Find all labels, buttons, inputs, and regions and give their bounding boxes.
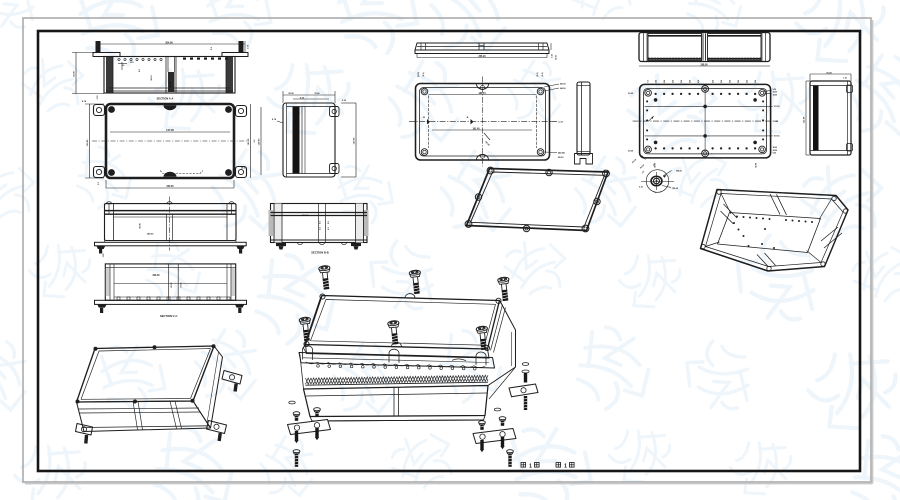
svg-text:2.0: 2.0 [642, 171, 645, 174]
svg-text:25.4: 25.4 [754, 80, 757, 83]
svg-text:9.5: 9.5 [648, 80, 650, 82]
svg-text:(9.5): (9.5) [537, 72, 539, 76]
svg-text:76.20: 76.20 [826, 72, 832, 74]
svg-text:26.50: 26.50 [773, 150, 778, 152]
svg-text:R6.00: R6.00 [558, 157, 564, 159]
svg-text:SECTION C-C: SECTION C-C [160, 314, 178, 318]
svg-text:25.4: 25.4 [728, 80, 731, 83]
svg-text:25.4: 25.4 [680, 80, 683, 83]
svg-text:25.4: 25.4 [671, 80, 674, 83]
svg-text:- 13.5: - 13.5 [128, 62, 134, 64]
svg-text:M4.00: M4.00 [676, 170, 683, 173]
svg-text:28.50: 28.50 [241, 168, 246, 170]
svg-text:R4.50: R4.50 [631, 158, 637, 164]
svg-text:SECTION A-A: SECTION A-A [157, 97, 174, 101]
svg-text:148.30: 148.30 [147, 233, 154, 236]
svg-text:1.50: 1.50 [97, 95, 99, 100]
svg-text:B: B [423, 117, 425, 119]
svg-text:8.5: 8.5 [139, 68, 141, 72]
svg-text:-C.00: -C.00 [558, 122, 564, 124]
svg-text:8.74: 8.74 [272, 118, 277, 121]
svg-text:36.10: 36.10 [151, 75, 153, 81]
svg-text:85.00: 85.00 [171, 282, 173, 288]
svg-text:25.4: 25.4 [688, 80, 691, 83]
svg-text:95.00: 95.00 [140, 223, 142, 229]
svg-text:1.50: 1.50 [103, 254, 105, 258]
svg-text:25.4: 25.4 [737, 80, 740, 83]
svg-text:206.30: 206.30 [152, 275, 160, 277]
svg-text:69.30: 69.30 [628, 93, 634, 95]
svg-text:1.30: 1.30 [843, 78, 847, 80]
svg-text:25.00: 25.00 [288, 93, 294, 95]
svg-text:6.35: 6.35 [342, 100, 347, 102]
svg-text:Ø6.00: Ø6.00 [560, 84, 566, 86]
svg-text:6.30: 6.30 [639, 187, 643, 189]
svg-text:25.4: 25.4 [745, 80, 748, 83]
svg-text:107.30: 107.30 [774, 106, 780, 108]
svg-text:38.00: 38.00 [773, 147, 778, 149]
svg-text:8.74: 8.74 [82, 100, 87, 103]
svg-text:38.00: 38.00 [773, 95, 778, 97]
svg-text:4.5: 4.5 [327, 227, 330, 230]
svg-text:R5.00: R5.00 [673, 188, 679, 190]
svg-text:3.5: 3.5 [654, 164, 656, 167]
svg-text:208.00: 208.00 [700, 64, 708, 66]
svg-text:1.50: 1.50 [552, 54, 554, 58]
svg-text:191.40: 191.40 [472, 127, 480, 130]
svg-text:0.4: 0.4 [253, 139, 256, 143]
svg-text:(6.0): (6.0) [542, 72, 544, 76]
svg-text:(6.0): (6.0) [423, 72, 425, 76]
svg-text:B: B [467, 117, 469, 119]
svg-text:14.00: 14.00 [555, 55, 558, 60]
svg-text:160.00: 160.00 [248, 138, 250, 145]
svg-text:205.20: 205.20 [478, 56, 486, 58]
svg-text:-0.00: -0.00 [774, 121, 778, 123]
svg-text:(9.50): (9.50) [418, 72, 420, 77]
svg-text:R4.20: R4.20 [484, 141, 491, 148]
svg-text:204.00: 204.00 [165, 41, 173, 44]
svg-text:42.60: 42.60 [169, 81, 172, 87]
svg-text:183.54: 183.54 [478, 92, 486, 95]
svg-text:26.00: 26.00 [773, 92, 778, 94]
svg-text:152.40: 152.40 [86, 139, 89, 146]
svg-text:3.5: 3.5 [320, 227, 322, 230]
svg-text:75.40: 75.40 [314, 92, 320, 95]
svg-text:200.00: 200.00 [166, 186, 174, 188]
svg-text:7°: 7° [654, 193, 656, 195]
svg-text:3.5: 3.5 [211, 46, 213, 50]
svg-text:Ø4.00: Ø4.00 [560, 87, 566, 90]
svg-text:152.00: 152.00 [804, 116, 806, 123]
svg-text:55.00: 55.00 [74, 70, 76, 76]
svg-text:158.00: 158.00 [259, 138, 261, 145]
svg-text:8.5: 8.5 [320, 221, 322, 224]
svg-text:25.4: 25.4 [720, 80, 723, 83]
svg-text:9.5: 9.5 [328, 221, 330, 224]
svg-text:(Ø4.00): (Ø4.00) [558, 152, 565, 155]
svg-text:185.00: 185.00 [302, 215, 309, 217]
svg-text:SECTION B-B: SECTION B-B [311, 251, 329, 255]
svg-text:25.4: 25.4 [711, 80, 714, 83]
svg-text:81.00: 81.00 [181, 282, 183, 288]
svg-text:3.5: 3.5 [98, 182, 100, 185]
svg-text:25.4: 25.4 [654, 80, 657, 83]
svg-text:9.50: 9.50 [773, 89, 777, 91]
svg-text:150.00: 150.00 [354, 137, 356, 144]
svg-text:1: 1 [529, 463, 532, 469]
svg-text:107.36: 107.36 [774, 136, 780, 138]
svg-text:R9.00: R9.00 [640, 164, 645, 169]
svg-text:25.4: 25.4 [663, 80, 666, 83]
svg-text:69.30: 69.30 [628, 150, 634, 152]
svg-text:1: 1 [564, 463, 567, 469]
svg-text:147.00: 147.00 [166, 129, 174, 132]
svg-text:45.00: 45.00 [755, 163, 758, 168]
svg-text:9.50: 9.50 [773, 153, 777, 155]
svg-text:25.4: 25.4 [697, 80, 700, 83]
